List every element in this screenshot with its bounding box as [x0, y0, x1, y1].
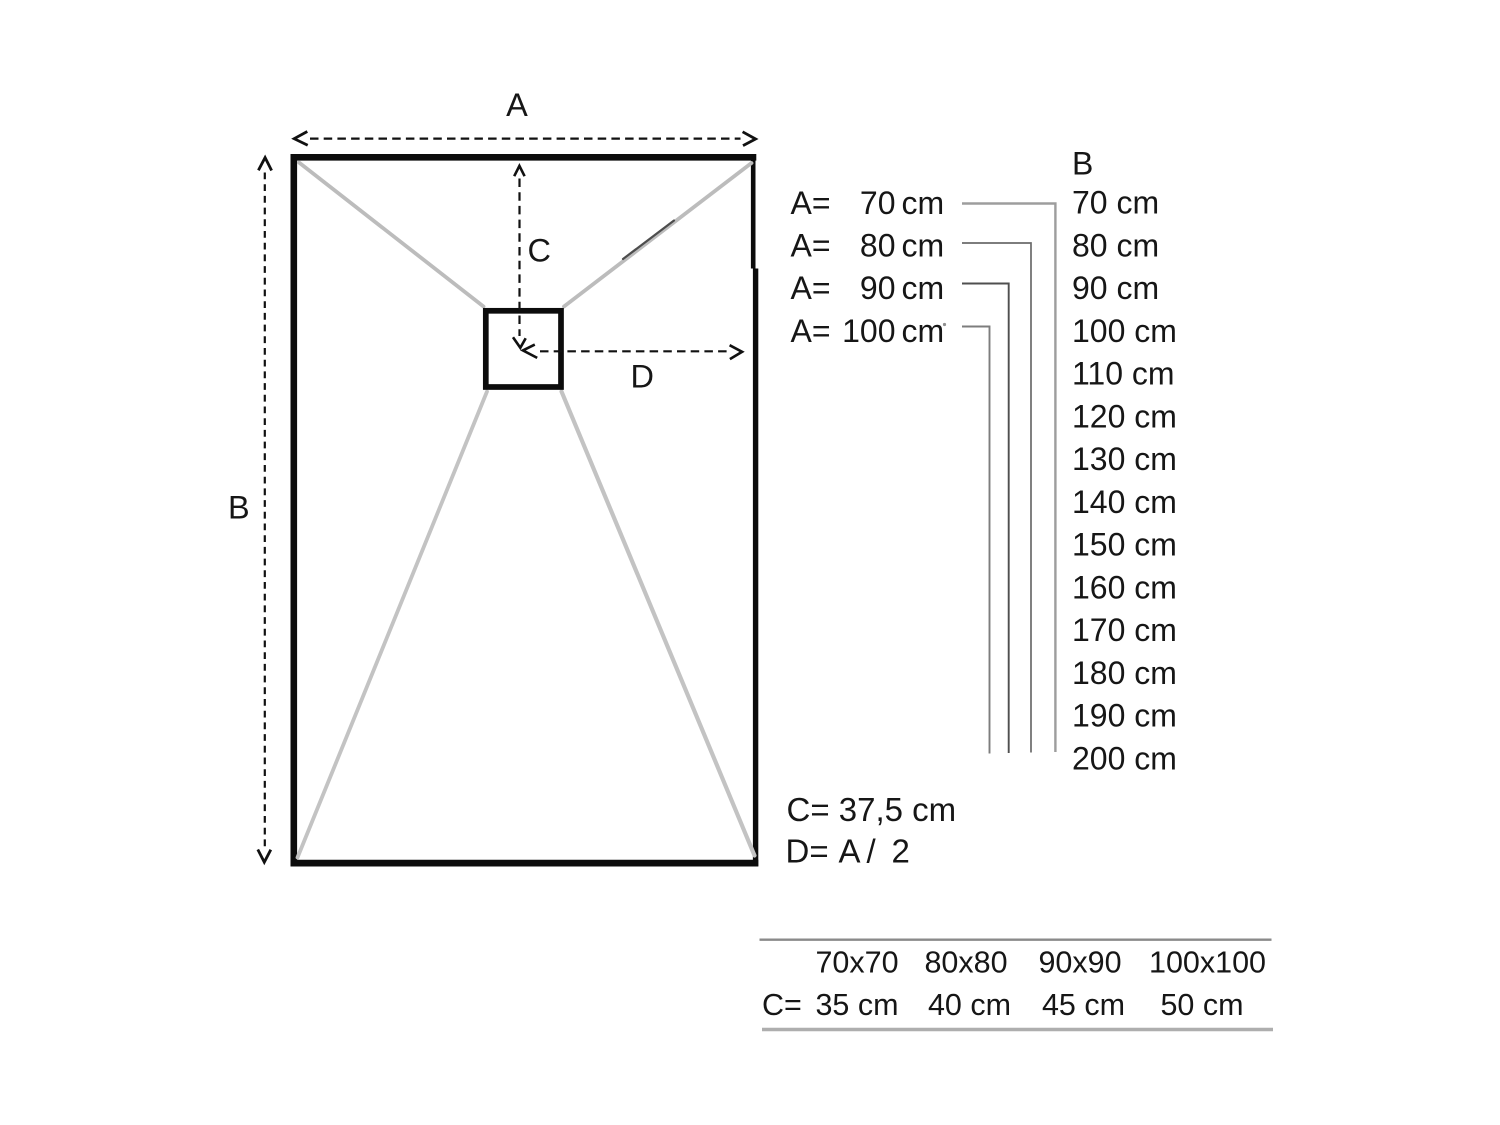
svg-text:70: 70	[860, 185, 896, 221]
svg-text:35 cm: 35 cm	[815, 988, 898, 1022]
svg-text:110 cm: 110 cm	[1072, 356, 1175, 392]
svg-text:B: B	[1072, 146, 1093, 182]
svg-text:120 cm: 120 cm	[1072, 398, 1177, 434]
svg-text:C=: C=	[762, 988, 802, 1022]
svg-text:200 cm: 200 cm	[1072, 740, 1177, 776]
svg-text:cm: cm	[902, 227, 945, 263]
svg-text:70x70: 70x70	[815, 945, 898, 979]
svg-text:B: B	[228, 490, 250, 526]
svg-text:80 cm: 80 cm	[1072, 227, 1159, 263]
svg-text:100x100: 100x100	[1149, 945, 1266, 979]
svg-text:170 cm: 170 cm	[1072, 612, 1177, 648]
svg-text:90x90: 90x90	[1038, 945, 1121, 979]
svg-text:A: A	[506, 87, 528, 123]
svg-text:90: 90	[860, 270, 896, 306]
svg-text:45 cm: 45 cm	[1042, 988, 1125, 1022]
svg-text:190 cm: 190 cm	[1072, 698, 1177, 734]
svg-text:80: 80	[860, 227, 896, 263]
svg-text:130 cm: 130 cm	[1072, 441, 1177, 477]
svg-text:D: D	[631, 359, 654, 395]
svg-text:C: C	[528, 232, 551, 268]
svg-text:100 cm: 100 cm	[1072, 313, 1177, 349]
svg-text:cm: cm	[902, 313, 945, 349]
svg-text:180 cm: 180 cm	[1072, 655, 1177, 691]
svg-text:A=: A=	[791, 227, 831, 263]
svg-text:C= 37,5 cm: C= 37,5 cm	[787, 791, 957, 828]
svg-text:A=: A=	[791, 185, 831, 221]
svg-text:A=: A=	[791, 270, 831, 306]
svg-text:cm: cm	[902, 185, 945, 221]
svg-text:100: 100	[842, 313, 895, 349]
svg-text:160 cm: 160 cm	[1072, 569, 1177, 605]
svg-text:A=: A=	[791, 313, 831, 349]
svg-text:50 cm: 50 cm	[1160, 988, 1243, 1022]
svg-text:90 cm: 90 cm	[1072, 270, 1159, 306]
svg-text:150 cm: 150 cm	[1072, 527, 1177, 563]
svg-text:40 cm: 40 cm	[928, 988, 1011, 1022]
svg-text:140 cm: 140 cm	[1072, 484, 1177, 520]
svg-text:70 cm: 70 cm	[1072, 185, 1159, 221]
svg-text:D=A/2: D=A/2	[786, 832, 910, 869]
svg-text:cm: cm	[902, 270, 945, 306]
svg-text:80x80: 80x80	[924, 945, 1007, 979]
